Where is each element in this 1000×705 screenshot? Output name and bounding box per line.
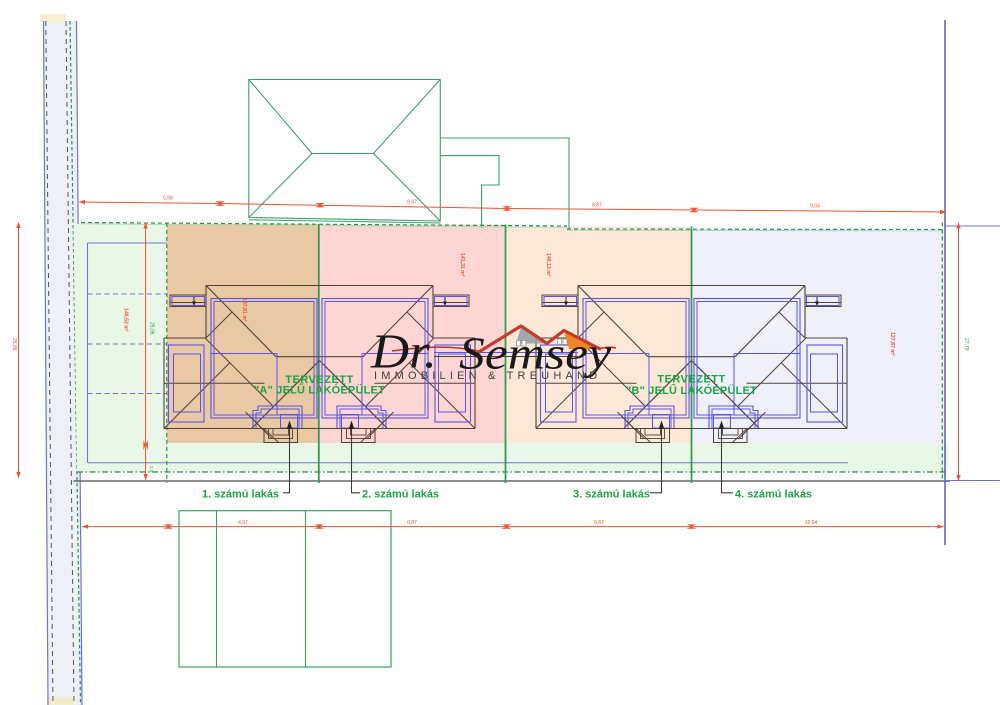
svg-text:Dr.: Dr. — [370, 324, 437, 379]
svg-text:6,87: 6,87 — [592, 203, 602, 209]
svg-text:146,52 m²: 146,52 m² — [123, 308, 129, 332]
svg-text:Semsey: Semsey — [459, 329, 611, 379]
svg-text:"A" JELŰ LAKÓÉPÜLET: "A" JELŰ LAKÓÉPÜLET — [254, 384, 385, 397]
svg-text:8,47: 8,47 — [407, 200, 417, 206]
svg-text:1. számú lakás: 1. számú lakás — [202, 489, 279, 501]
svg-text:4,97: 4,97 — [238, 520, 248, 526]
svg-text:25,06: 25,06 — [149, 322, 155, 335]
svg-text:127,87 m²: 127,87 m² — [889, 332, 895, 356]
svg-text:2. számú lakás: 2. számú lakás — [362, 489, 439, 501]
svg-text:5,98: 5,98 — [163, 196, 173, 202]
svg-text:"B" JELŰ LAKÓÉPÜLET: "B" JELŰ LAKÓÉPÜLET — [626, 384, 757, 397]
svg-text:2,0: 2,0 — [149, 466, 154, 473]
svg-text:6,87: 6,87 — [407, 520, 417, 526]
svg-text:6,87: 6,87 — [594, 520, 604, 526]
svg-text:15,04: 15,04 — [805, 520, 818, 526]
svg-text:25,86: 25,86 — [11, 338, 17, 351]
svg-text:TERVEZETT: TERVEZETT — [657, 374, 725, 386]
svg-text:140,13 m²: 140,13 m² — [545, 253, 551, 277]
svg-text:3. számú lakás: 3. számú lakás — [573, 489, 650, 501]
svg-text:27,79: 27,79 — [963, 338, 969, 351]
svg-text:141,31 m²: 141,31 m² — [459, 253, 465, 277]
svg-text:137,81 m²: 137,81 m² — [241, 298, 247, 322]
svg-text:9,04: 9,04 — [810, 204, 820, 210]
svg-text:4. számú lakás: 4. számú lakás — [735, 489, 812, 501]
